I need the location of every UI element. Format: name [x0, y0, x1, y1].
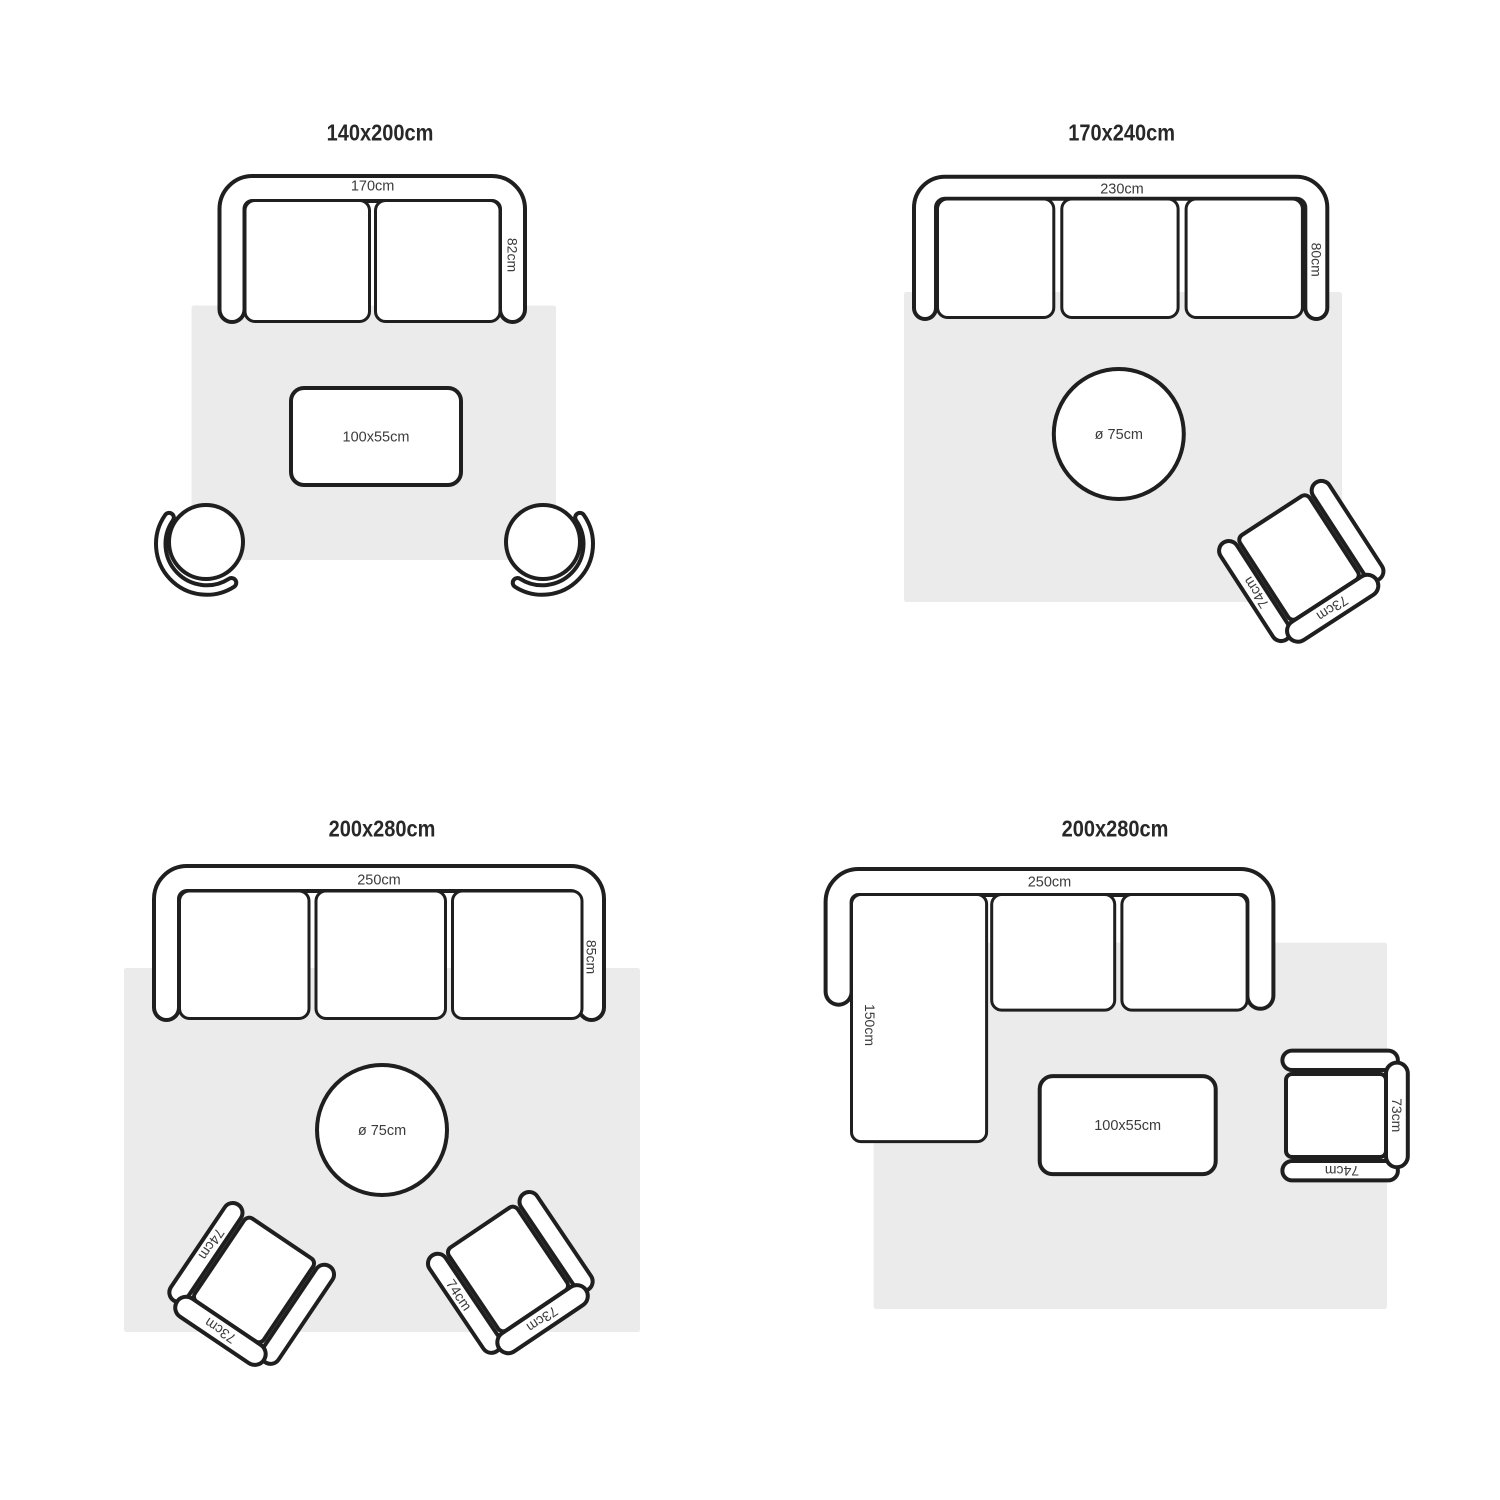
svg-text:200x280cm: 200x280cm — [1062, 815, 1169, 842]
svg-text:140x200cm: 140x200cm — [327, 119, 434, 146]
svg-text:ø 75cm: ø 75cm — [358, 1123, 406, 1139]
svg-text:250cm: 250cm — [357, 873, 401, 889]
svg-text:100x55cm: 100x55cm — [343, 430, 410, 446]
svg-text:150cm: 150cm — [862, 1004, 878, 1046]
svg-text:170cm: 170cm — [351, 178, 395, 194]
svg-text:200x280cm: 200x280cm — [329, 815, 436, 842]
svg-text:80cm: 80cm — [1309, 243, 1325, 277]
svg-text:82cm: 82cm — [505, 238, 521, 272]
svg-text:170x240cm: 170x240cm — [1068, 119, 1175, 146]
svg-text:230cm: 230cm — [1100, 182, 1144, 198]
svg-text:250cm: 250cm — [1028, 875, 1072, 891]
svg-text:ø 75cm: ø 75cm — [1095, 427, 1143, 443]
svg-text:73cm: 73cm — [1389, 1098, 1405, 1132]
svg-text:100x55cm: 100x55cm — [1094, 1118, 1161, 1134]
svg-text:74cm: 74cm — [1325, 1163, 1359, 1179]
svg-text:85cm: 85cm — [584, 940, 600, 974]
